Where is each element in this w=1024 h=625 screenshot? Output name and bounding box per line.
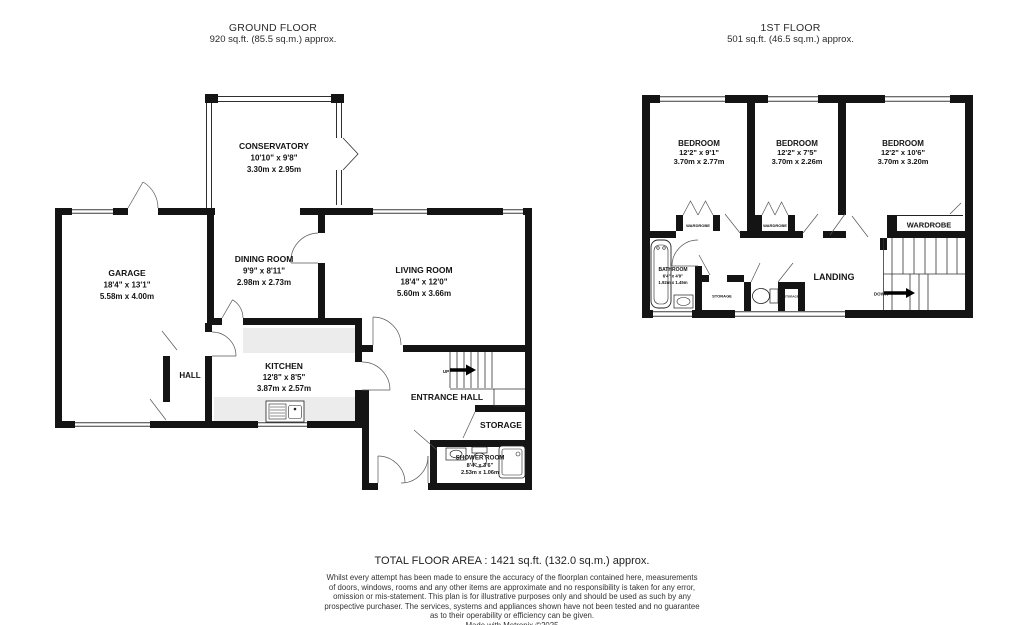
bedroom-2-metric: 3.70m x 2.26m — [772, 157, 823, 166]
ground-floor-header: GROUND FLOOR 920 sq.ft. (85.5 sq.m.) app… — [148, 22, 398, 46]
bedroom-3-metric: 3.70m x 3.20m — [878, 157, 929, 166]
bedroom-1-metric: 3.70m x 2.77m — [674, 157, 725, 166]
bedroom-1-imperial: 12'2" x 9'1" — [679, 148, 719, 157]
footer: TOTAL FLOOR AREA : 1421 sq.ft. (132.0 sq… — [0, 555, 1024, 625]
label-bedroom-3: BEDROOM 12'2" x 10'6" 3.70m x 3.20m — [878, 139, 929, 166]
label-conservatory: CONSERVATORY 10'10" x 9'8" 3.30m x 2.95m — [239, 141, 309, 174]
disclaimer-line: as to their operability or efficiency ca… — [0, 611, 1024, 621]
garage-name: GARAGE — [108, 268, 146, 278]
label-bedroom-1: BEDROOM 12'2" x 9'1" 3.70m x 2.77m — [674, 139, 725, 166]
toilet-icon — [753, 289, 779, 304]
wardrobe-1-label: WARDROBE — [686, 223, 710, 228]
ground-floor-title: GROUND FLOOR — [148, 22, 398, 34]
first-floor-title: 1ST FLOOR — [663, 22, 918, 34]
hall-label: HALL — [179, 371, 200, 380]
first-floor-header: 1ST FLOOR 501 sq.ft. (46.5 sq.m.) approx… — [663, 22, 918, 46]
label-dining-room: DINING ROOM 9'9" x 8'11" 2.98m x 2.73m — [235, 254, 294, 287]
kitchen-metric: 3.87m x 2.57m — [257, 384, 311, 393]
bathroom-imperial: 6'4" x 4'9" — [663, 274, 683, 279]
stairs-down-label: DOWN — [874, 292, 888, 297]
conservatory-metric: 3.30m x 2.95m — [247, 165, 301, 174]
conservatory-structure — [205, 94, 358, 208]
kitchen-name: KITCHEN — [265, 361, 303, 371]
ground-floor-area: 920 sq.ft. (85.5 sq.m.) approx. — [148, 34, 398, 46]
bedroom-2-name: BEDROOM — [776, 139, 818, 148]
storage-small-label: STORAGE — [784, 295, 799, 299]
label-bedroom-2: BEDROOM 12'2" x 7'5" 3.70m x 2.26m — [772, 139, 823, 166]
disclaimer-line: Whilst every attempt has been made to en… — [0, 573, 1024, 583]
disclaimer-line: prospective purchaser. The services, sys… — [0, 602, 1024, 612]
bedroom-3-name: BEDROOM — [882, 139, 924, 148]
disclaimer-line: of doors, windows, rooms and any other i… — [0, 583, 1024, 593]
first-floor-area: 501 sq.ft. (46.5 sq.m.) approx. — [663, 34, 918, 46]
conservatory-corner — [205, 94, 218, 103]
disclaimer-line: omission or mis-statement. This plan is … — [0, 592, 1024, 602]
floorplan-page: GROUND FLOOR 920 sq.ft. (85.5 sq.m.) app… — [0, 0, 1024, 625]
wardrobe-doors — [683, 201, 963, 216]
first-floor-plan: DOWN BEDROOM 12'2" x 9'1" 3.70m x 2.77m … — [630, 80, 1000, 330]
storage-label: STORAGE — [480, 420, 522, 430]
wardrobe-2-label: WARDROBE — [763, 223, 787, 228]
label-kitchen: KITCHEN 12'8" x 8'5" 3.87m x 2.57m — [257, 361, 311, 393]
bathroom-metric: 1.92m x 1.45m — [658, 280, 687, 285]
label-shower-room: SHOWER ROOM 8'4" x 3'6" 2.53m x 1.06m — [456, 455, 505, 477]
stairs-up-label: UP — [443, 369, 449, 374]
garage-metric: 5.58m x 4.00m — [100, 292, 154, 301]
bedroom-2-imperial: 12'2" x 7'5" — [777, 148, 817, 157]
kitchen-imperial: 12'8" x 8'5" — [263, 373, 306, 382]
wardrobe-3-label: WARDROBE — [907, 221, 952, 230]
garage-imperial: 18'4" x 13'1" — [104, 281, 151, 290]
label-living-room: LIVING ROOM 18'4" x 12'0" 5.60m x 3.66m — [395, 265, 452, 298]
label-garage: GARAGE 18'4" x 13'1" 5.58m x 4.00m — [100, 268, 154, 301]
conservatory-name: CONSERVATORY — [239, 141, 309, 151]
conservatory-door — [343, 138, 358, 170]
disclaimer: Whilst every attempt has been made to en… — [0, 573, 1024, 625]
dining-room-imperial: 9'9" x 8'11" — [243, 267, 285, 276]
conservatory-corner — [331, 94, 344, 103]
shower-icon — [499, 446, 525, 478]
bathroom-name: BATHROOM — [658, 267, 687, 273]
first-floor-walls — [642, 95, 973, 318]
bedroom-3-imperial: 12'2" x 10'6" — [881, 148, 925, 157]
kitchen-sink-icon — [266, 401, 304, 422]
down-arrow-head-icon — [906, 288, 915, 298]
bedroom-1-name: BEDROOM — [678, 139, 720, 148]
shower-room-imperial: 8'4" x 3'6" — [467, 463, 494, 469]
shower-room-metric: 2.53m x 1.06m — [461, 470, 499, 476]
label-bathroom: BATHROOM 6'4" x 4'9" 1.92m x 1.45m — [658, 267, 687, 285]
living-room-metric: 5.60m x 3.66m — [397, 289, 451, 298]
dining-room-name: DINING ROOM — [235, 254, 294, 264]
stairs-down — [884, 238, 966, 310]
living-room-name: LIVING ROOM — [395, 265, 452, 275]
dining-room-metric: 2.98m x 2.73m — [237, 278, 291, 287]
shower-room-name: SHOWER ROOM — [456, 455, 505, 462]
entrance-hall-label: ENTRANCE HALL — [411, 392, 483, 402]
basin-icon — [674, 295, 693, 308]
storage-label: STORAGE — [712, 294, 732, 299]
conservatory-imperial: 10'10" x 9'8" — [251, 154, 298, 163]
landing-label: LANDING — [814, 272, 855, 282]
living-room-imperial: 18'4" x 12'0" — [401, 278, 448, 287]
total-floor-area: TOTAL FLOOR AREA : 1421 sq.ft. (132.0 sq… — [0, 555, 1024, 567]
metropix-credit: Made with Metropix ©2025 — [0, 621, 1024, 625]
ground-floor-plan: UP — [40, 80, 545, 505]
